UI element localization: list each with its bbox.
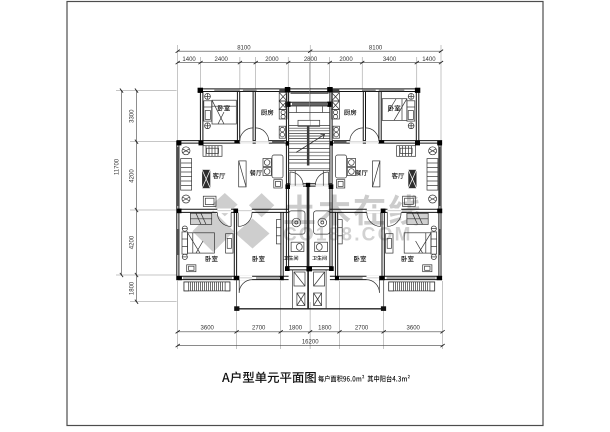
svg-text:3600: 3600: [201, 326, 215, 332]
svg-text:2400: 2400: [215, 57, 229, 63]
svg-text:2800: 2800: [304, 57, 318, 63]
svg-text:2000: 2000: [265, 57, 279, 63]
svg-text:1400: 1400: [182, 57, 196, 63]
svg-text:1800: 1800: [130, 281, 136, 295]
svg-text:3300: 3300: [130, 109, 136, 123]
svg-text:4200: 4200: [130, 169, 136, 183]
svg-text:3600: 3600: [407, 326, 421, 332]
svg-text:4200: 4200: [130, 235, 136, 249]
svg-text:1400: 1400: [422, 57, 436, 63]
svg-text:3400: 3400: [383, 57, 397, 63]
svg-text:2000: 2000: [339, 57, 353, 63]
svg-text:11700: 11700: [115, 158, 121, 175]
svg-text:8100: 8100: [237, 45, 251, 51]
svg-text:2700: 2700: [355, 326, 369, 332]
svg-text:1800: 1800: [289, 326, 303, 332]
svg-text:1800: 1800: [318, 326, 332, 332]
svg-text:16200: 16200: [302, 339, 319, 345]
svg-text:2700: 2700: [252, 326, 266, 332]
svg-text:8100: 8100: [369, 45, 383, 51]
